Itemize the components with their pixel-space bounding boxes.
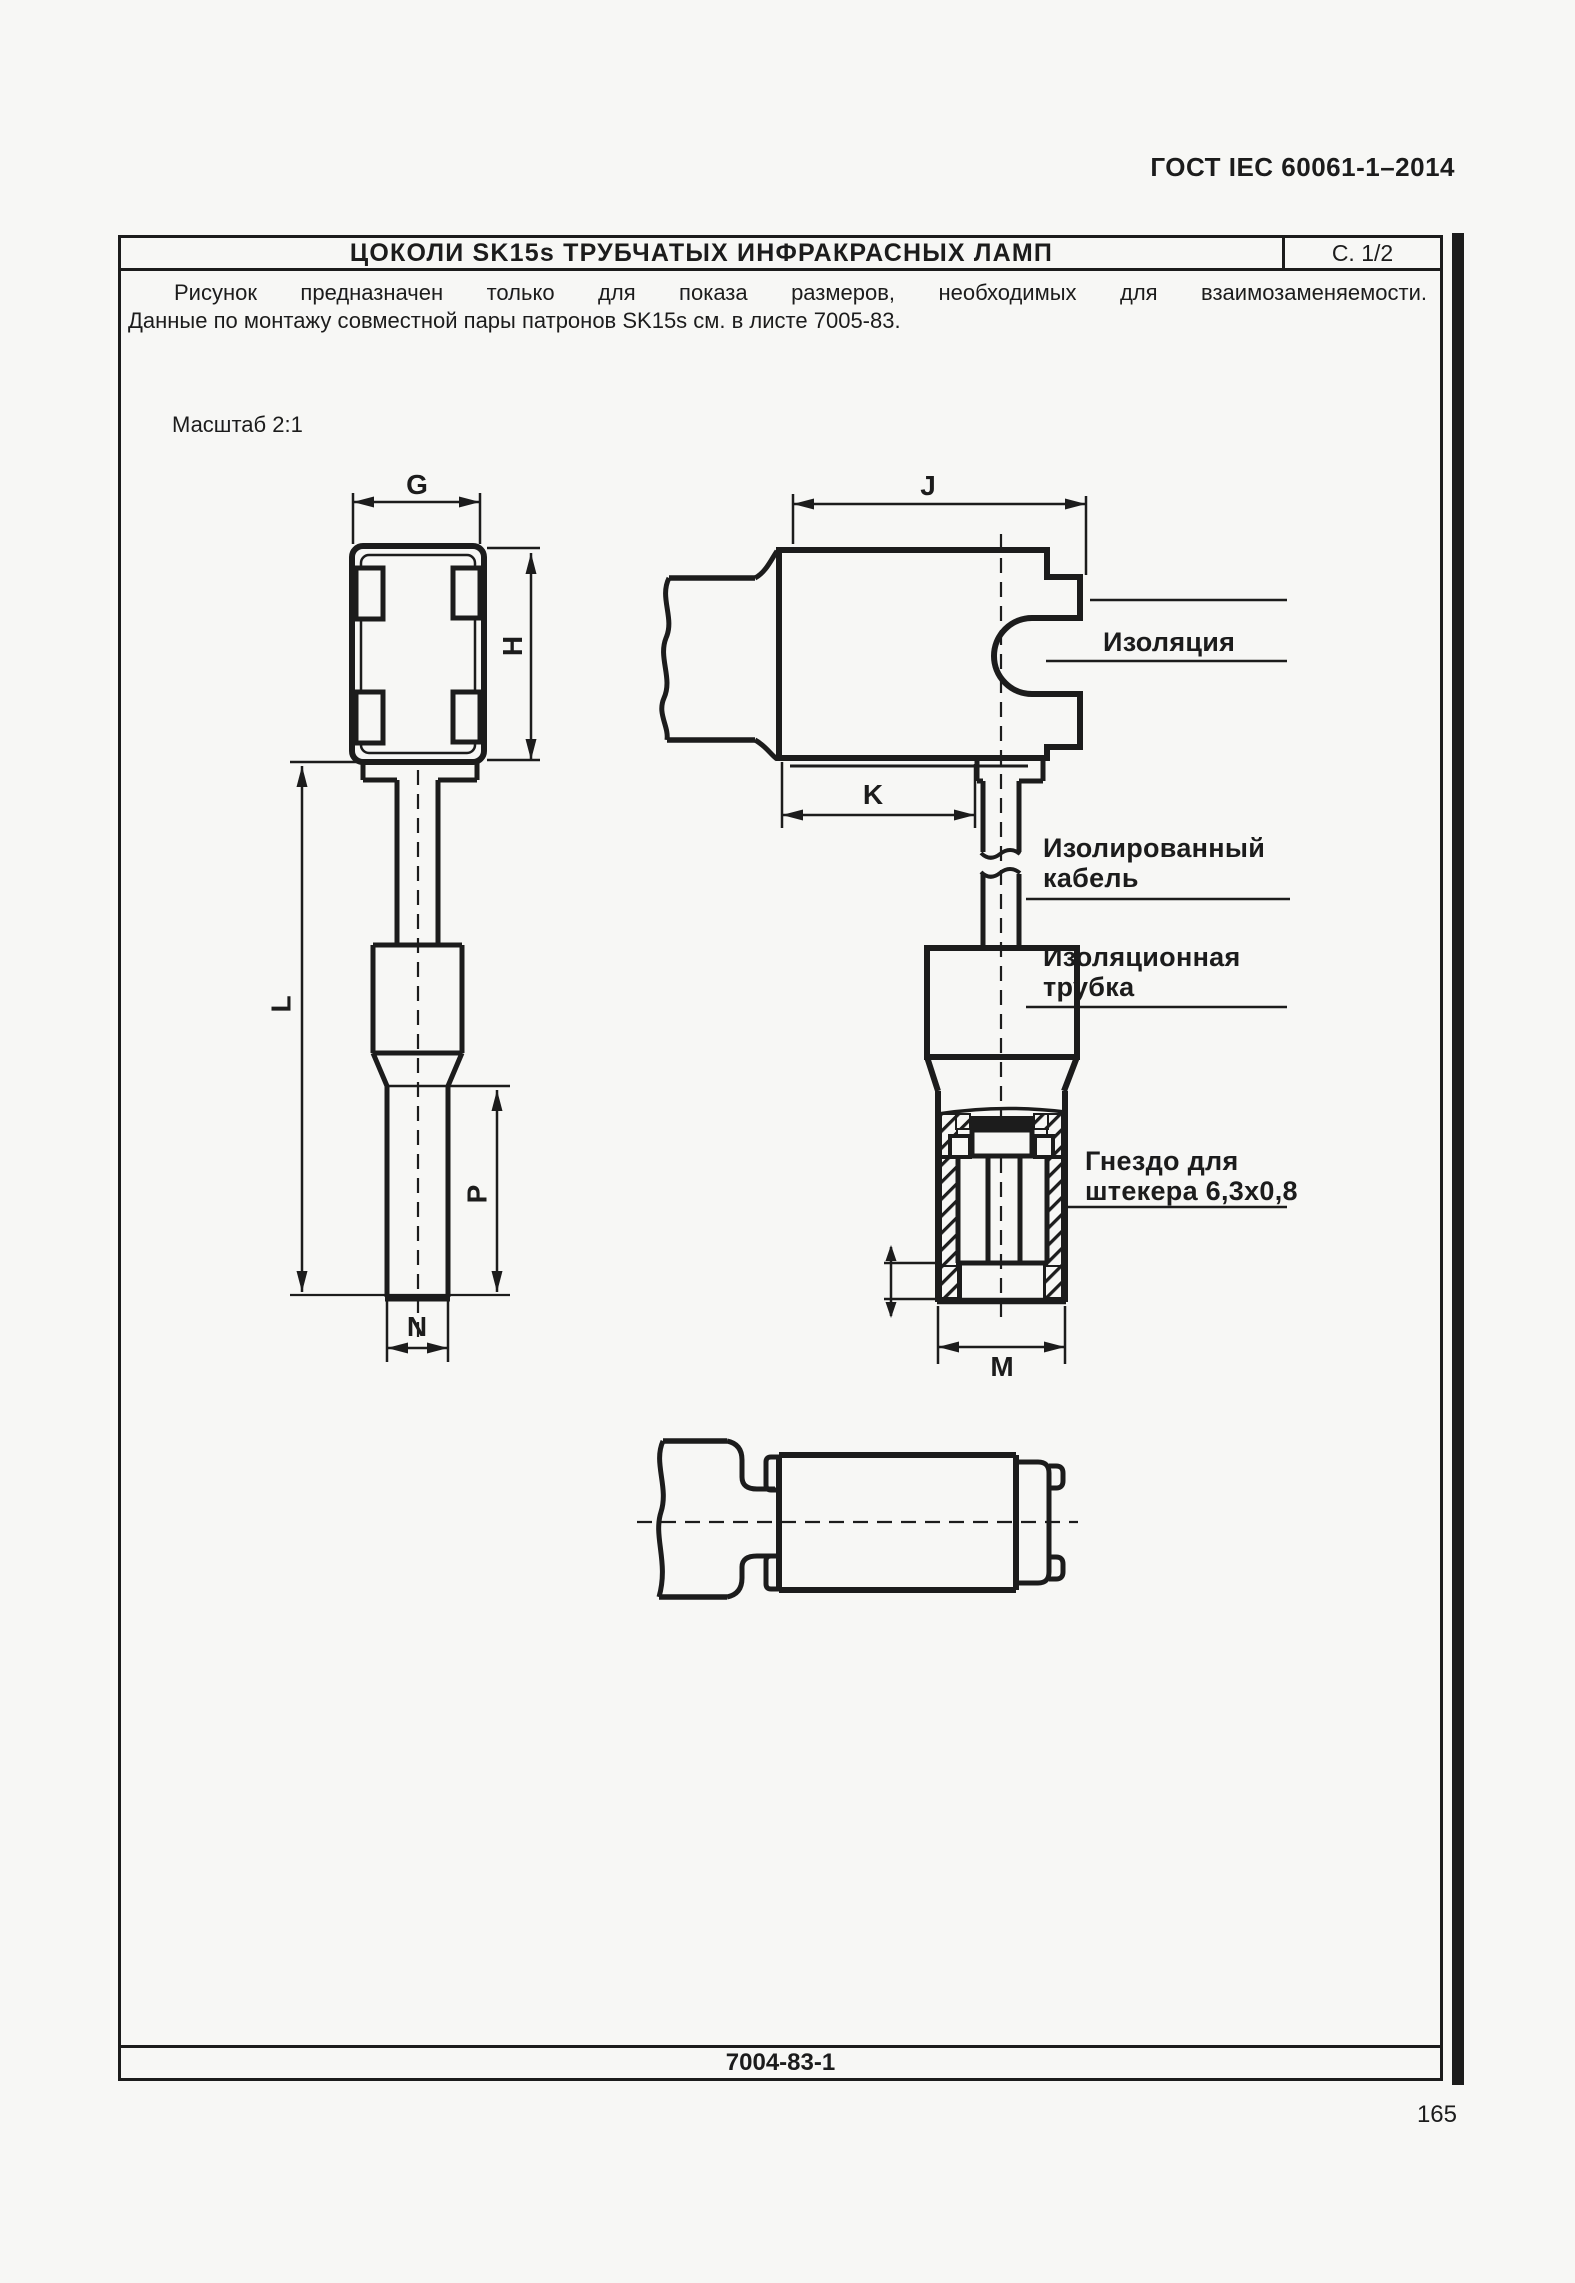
callout-insulated-cable-line1: Изолированный: [1043, 833, 1265, 863]
dim-label-l-text: L: [266, 995, 298, 1012]
sheet-page-ref: С. 1/2: [1285, 238, 1440, 268]
note-line-1: Рисунок предназначен только для показа р…: [128, 279, 1427, 307]
dim-label-m: M: [987, 1351, 1017, 1383]
dim-label-g: G: [402, 469, 432, 501]
callout-insulating-tube: Изоляционная трубка: [1043, 942, 1241, 1002]
callout-insulated-cable-line2: кабель: [1043, 863, 1265, 893]
binding-edge-bar: [1452, 233, 1464, 2085]
callout-socket: Гнездо для штекера 6,3х0,8: [1085, 1146, 1298, 1206]
sheet-title-row: ЦОКОЛИ SK15s ТРУБЧАТЫХ ИНФРАКРАСНЫХ ЛАМП…: [121, 238, 1440, 271]
dim-label-p-text: P: [461, 1185, 493, 1204]
callout-socket-line1: Гнездо для: [1085, 1146, 1298, 1176]
doc-number: 7004-83-1: [726, 2049, 835, 2077]
dim-label-k: K: [858, 779, 888, 811]
note-line-2: Данные по монтажу совместной пары патрон…: [128, 307, 1427, 335]
dim-label-h: H: [495, 628, 531, 664]
callout-insulated-cable: Изолированный кабель: [1043, 833, 1265, 893]
dim-label-j: J: [913, 470, 943, 502]
callout-insulating-tube-line1: Изоляционная: [1043, 942, 1241, 972]
page-number: 165: [1387, 2101, 1457, 2129]
dim-label-h-text: H: [497, 636, 529, 656]
callout-insulating-tube-line2: трубка: [1043, 972, 1241, 1002]
document-page: ГОСТ IEC 60061-1–2014: [0, 0, 1575, 2283]
sheet-title: ЦОКОЛИ SK15s ТРУБЧАТЫХ ИНФРАКРАСНЫХ ЛАМП: [121, 238, 1285, 268]
doc-number-row: 7004-83-1: [121, 2045, 1440, 2078]
dim-label-p: P: [459, 1176, 495, 1212]
dim-label-n: N: [402, 1311, 432, 1343]
interchangeability-note: Рисунок предназначен только для показа р…: [128, 279, 1427, 335]
dim-label-l: L: [264, 986, 300, 1022]
scale-note: Масштаб 2:1: [172, 412, 303, 438]
callout-socket-line2: штекера 6,3х0,8: [1085, 1176, 1298, 1206]
callout-insulation: Изоляция: [1103, 627, 1235, 657]
